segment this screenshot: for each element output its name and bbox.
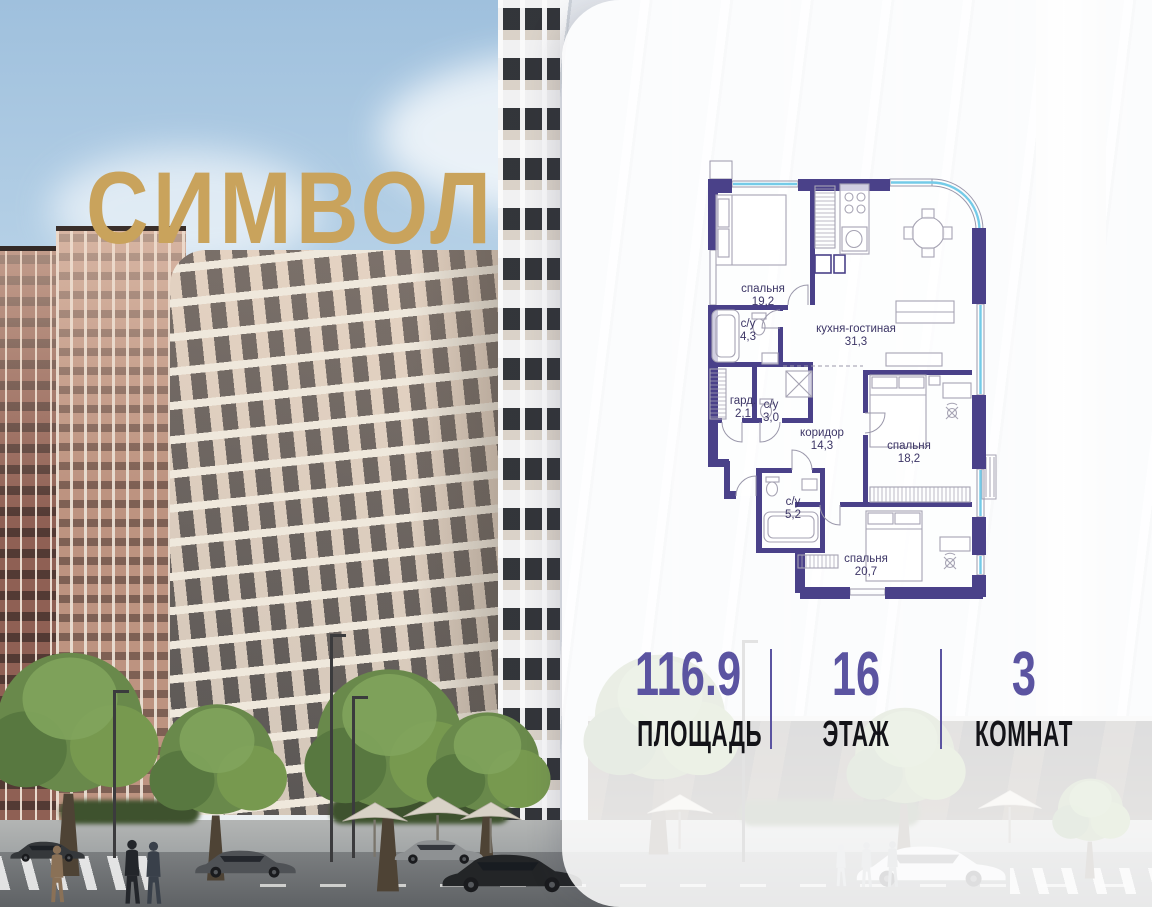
logo-simvol: СИМВОЛ [86, 150, 495, 267]
stat-rooms-label: КОМНАТ [973, 715, 1075, 753]
stat-area: 116.9 ПЛОЩАДЬ [606, 645, 770, 753]
floor-plan-drawing [700, 155, 1000, 610]
street-lamp [330, 634, 333, 862]
street-lamp [113, 690, 116, 858]
stat-floor-value: 16 [797, 645, 915, 705]
stat-floor: 16 ЭТАЖ [772, 645, 940, 753]
pedestrian [142, 840, 165, 907]
stat-area-label: ПЛОЩАДЬ [637, 715, 739, 753]
stat-floor-label: ЭТАЖ [804, 715, 908, 753]
stat-rooms-value: 3 [967, 645, 1082, 705]
balcony-outline [710, 161, 732, 179]
stat-rooms: 3 КОМНАТ [942, 645, 1106, 753]
listing-card: СИМВОЛ [0, 0, 1152, 907]
floor-plan: спальня19,2 с/у4,3 кухня-гостиная31,3 га… [700, 155, 1000, 610]
shafts [815, 255, 845, 273]
stat-area-value: 116.9 [631, 645, 746, 705]
car [192, 846, 300, 880]
pedestrian [46, 844, 68, 906]
pedestrian [120, 838, 144, 907]
stats-bar: 116.9 ПЛОЩАДЬ 16 ЭТАЖ 3 КОМНАТ [606, 645, 1106, 753]
